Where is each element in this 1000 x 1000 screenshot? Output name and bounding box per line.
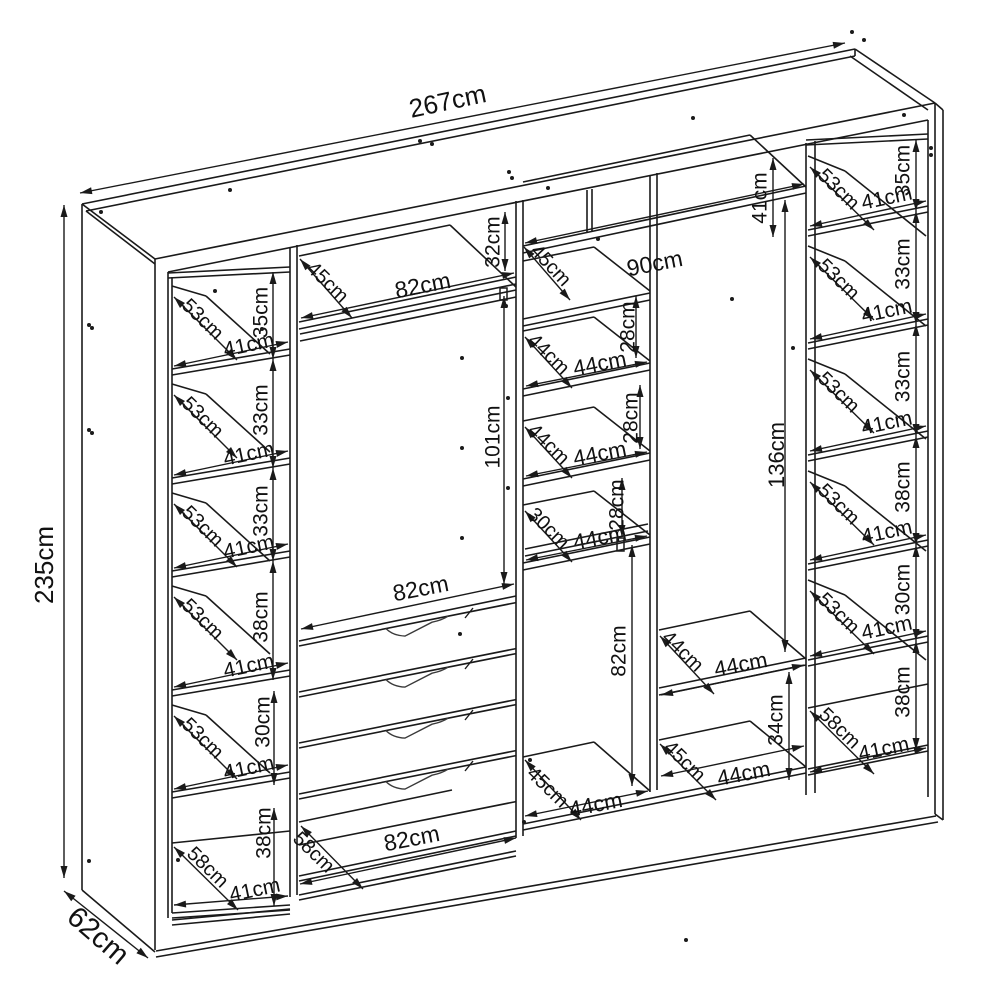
svg-text:41cm: 41cm [749,172,772,223]
svg-text:38cm: 38cm [250,591,273,642]
svg-text:33cm: 33cm [892,238,915,289]
svg-text:38cm: 38cm [253,807,276,858]
svg-text:30cm: 30cm [252,696,275,747]
svg-text:33cm: 33cm [250,384,273,435]
svg-text:28cm: 28cm [620,392,643,443]
svg-text:28cm: 28cm [606,479,629,530]
svg-text:33cm: 33cm [250,485,273,536]
svg-text:32cm: 32cm [482,216,505,267]
svg-text:136cm: 136cm [764,422,789,488]
svg-text:38cm: 38cm [892,461,915,512]
svg-text:28cm: 28cm [617,301,640,352]
svg-text:101cm: 101cm [482,405,505,468]
svg-text:35cm: 35cm [892,145,915,196]
svg-text:30cm: 30cm [892,564,915,615]
svg-text:34cm: 34cm [765,694,788,745]
svg-text:82cm: 82cm [608,625,631,676]
svg-text:235cm: 235cm [29,526,59,604]
svg-text:38cm: 38cm [892,666,915,717]
svg-text:33cm: 33cm [892,351,915,402]
